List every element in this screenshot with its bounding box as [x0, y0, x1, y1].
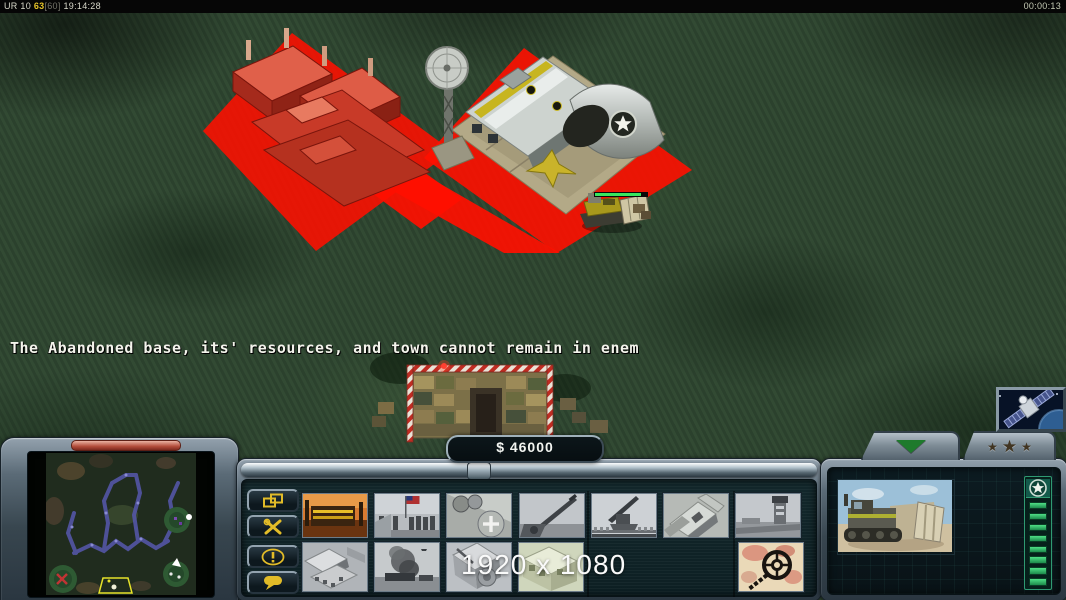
- windows-button[interactable]: [247, 489, 299, 512]
- top-status-bar: UR 10 63[60] 19:14:28 00:00:13: [0, 0, 1066, 13]
- side-button-column: [247, 489, 301, 597]
- supply-depot[interactable]: [370, 352, 608, 442]
- game-screen: UR 10 63[60] 19:14:28 00:00:13 The Aband…: [0, 0, 1066, 600]
- panel-light: [71, 440, 181, 451]
- cascade-windows-icon: [262, 492, 284, 509]
- chrome-pipe: [241, 463, 817, 477]
- build-button-flak-gun[interactable]: [591, 493, 657, 538]
- fps-cap: [60]: [44, 1, 60, 11]
- build-button-artillery[interactable]: [519, 493, 585, 538]
- build-button-helipad[interactable]: [446, 493, 512, 538]
- health-segment: [1029, 524, 1047, 531]
- health-segment: [1029, 556, 1047, 563]
- three-stars-icon: ★★★: [987, 437, 1032, 457]
- speech-bubble-icon: [261, 574, 285, 592]
- health-segment: [1029, 567, 1047, 574]
- health-bar: [594, 192, 648, 197]
- fps-value: 63: [34, 1, 45, 11]
- eva-message-text: The Abandoned base, its' resources, and …: [10, 339, 639, 357]
- crossed-tools-icon: [263, 518, 283, 536]
- minimap[interactable]: [27, 451, 215, 598]
- chat-button[interactable]: [247, 571, 299, 594]
- green-down-arrow-icon: [896, 440, 926, 453]
- build-button-building-complex[interactable]: [302, 542, 368, 592]
- star-emblem-icon: [1026, 479, 1050, 498]
- resolution-watermark: 1920 x 1080: [461, 549, 626, 581]
- clock: 19:14:28: [63, 1, 100, 11]
- satellite-icon: [999, 390, 1063, 429]
- repair-button[interactable]: [247, 515, 299, 538]
- grid-seam: [587, 491, 589, 597]
- health-segment: [1029, 578, 1047, 585]
- objectives-button[interactable]: [247, 545, 299, 568]
- health-segment: [1029, 502, 1047, 509]
- build-button-minesweeper-map[interactable]: [738, 542, 804, 592]
- session-label: UR 10: [4, 1, 31, 11]
- build-button-airfield-tower[interactable]: [735, 493, 801, 538]
- collapse-hud-tab[interactable]: [861, 431, 960, 460]
- build-button-harbor-smoke[interactable]: [374, 542, 440, 592]
- health-segment: [1029, 513, 1047, 520]
- build-button-factory-aerial[interactable]: [663, 493, 729, 538]
- dozer-portrait[interactable]: [837, 479, 955, 555]
- spy-satellite-button[interactable]: [996, 387, 1066, 432]
- exclamation-icon: [261, 548, 285, 565]
- minimap-panel: [0, 437, 239, 600]
- game-timer: 00:00:13: [1024, 0, 1061, 13]
- dozer-unit[interactable]: [580, 192, 651, 233]
- health-segment: [1029, 535, 1047, 542]
- unit-info-panel: [820, 458, 1066, 600]
- build-button-power-plant[interactable]: [302, 493, 368, 538]
- unit-health-bar: [1024, 476, 1052, 590]
- money-display: $ 46000: [446, 435, 604, 463]
- general-rank-tab[interactable]: ★★★: [963, 431, 1056, 460]
- health-segment: [1029, 546, 1047, 553]
- build-button-flag-ceremony[interactable]: [374, 493, 440, 538]
